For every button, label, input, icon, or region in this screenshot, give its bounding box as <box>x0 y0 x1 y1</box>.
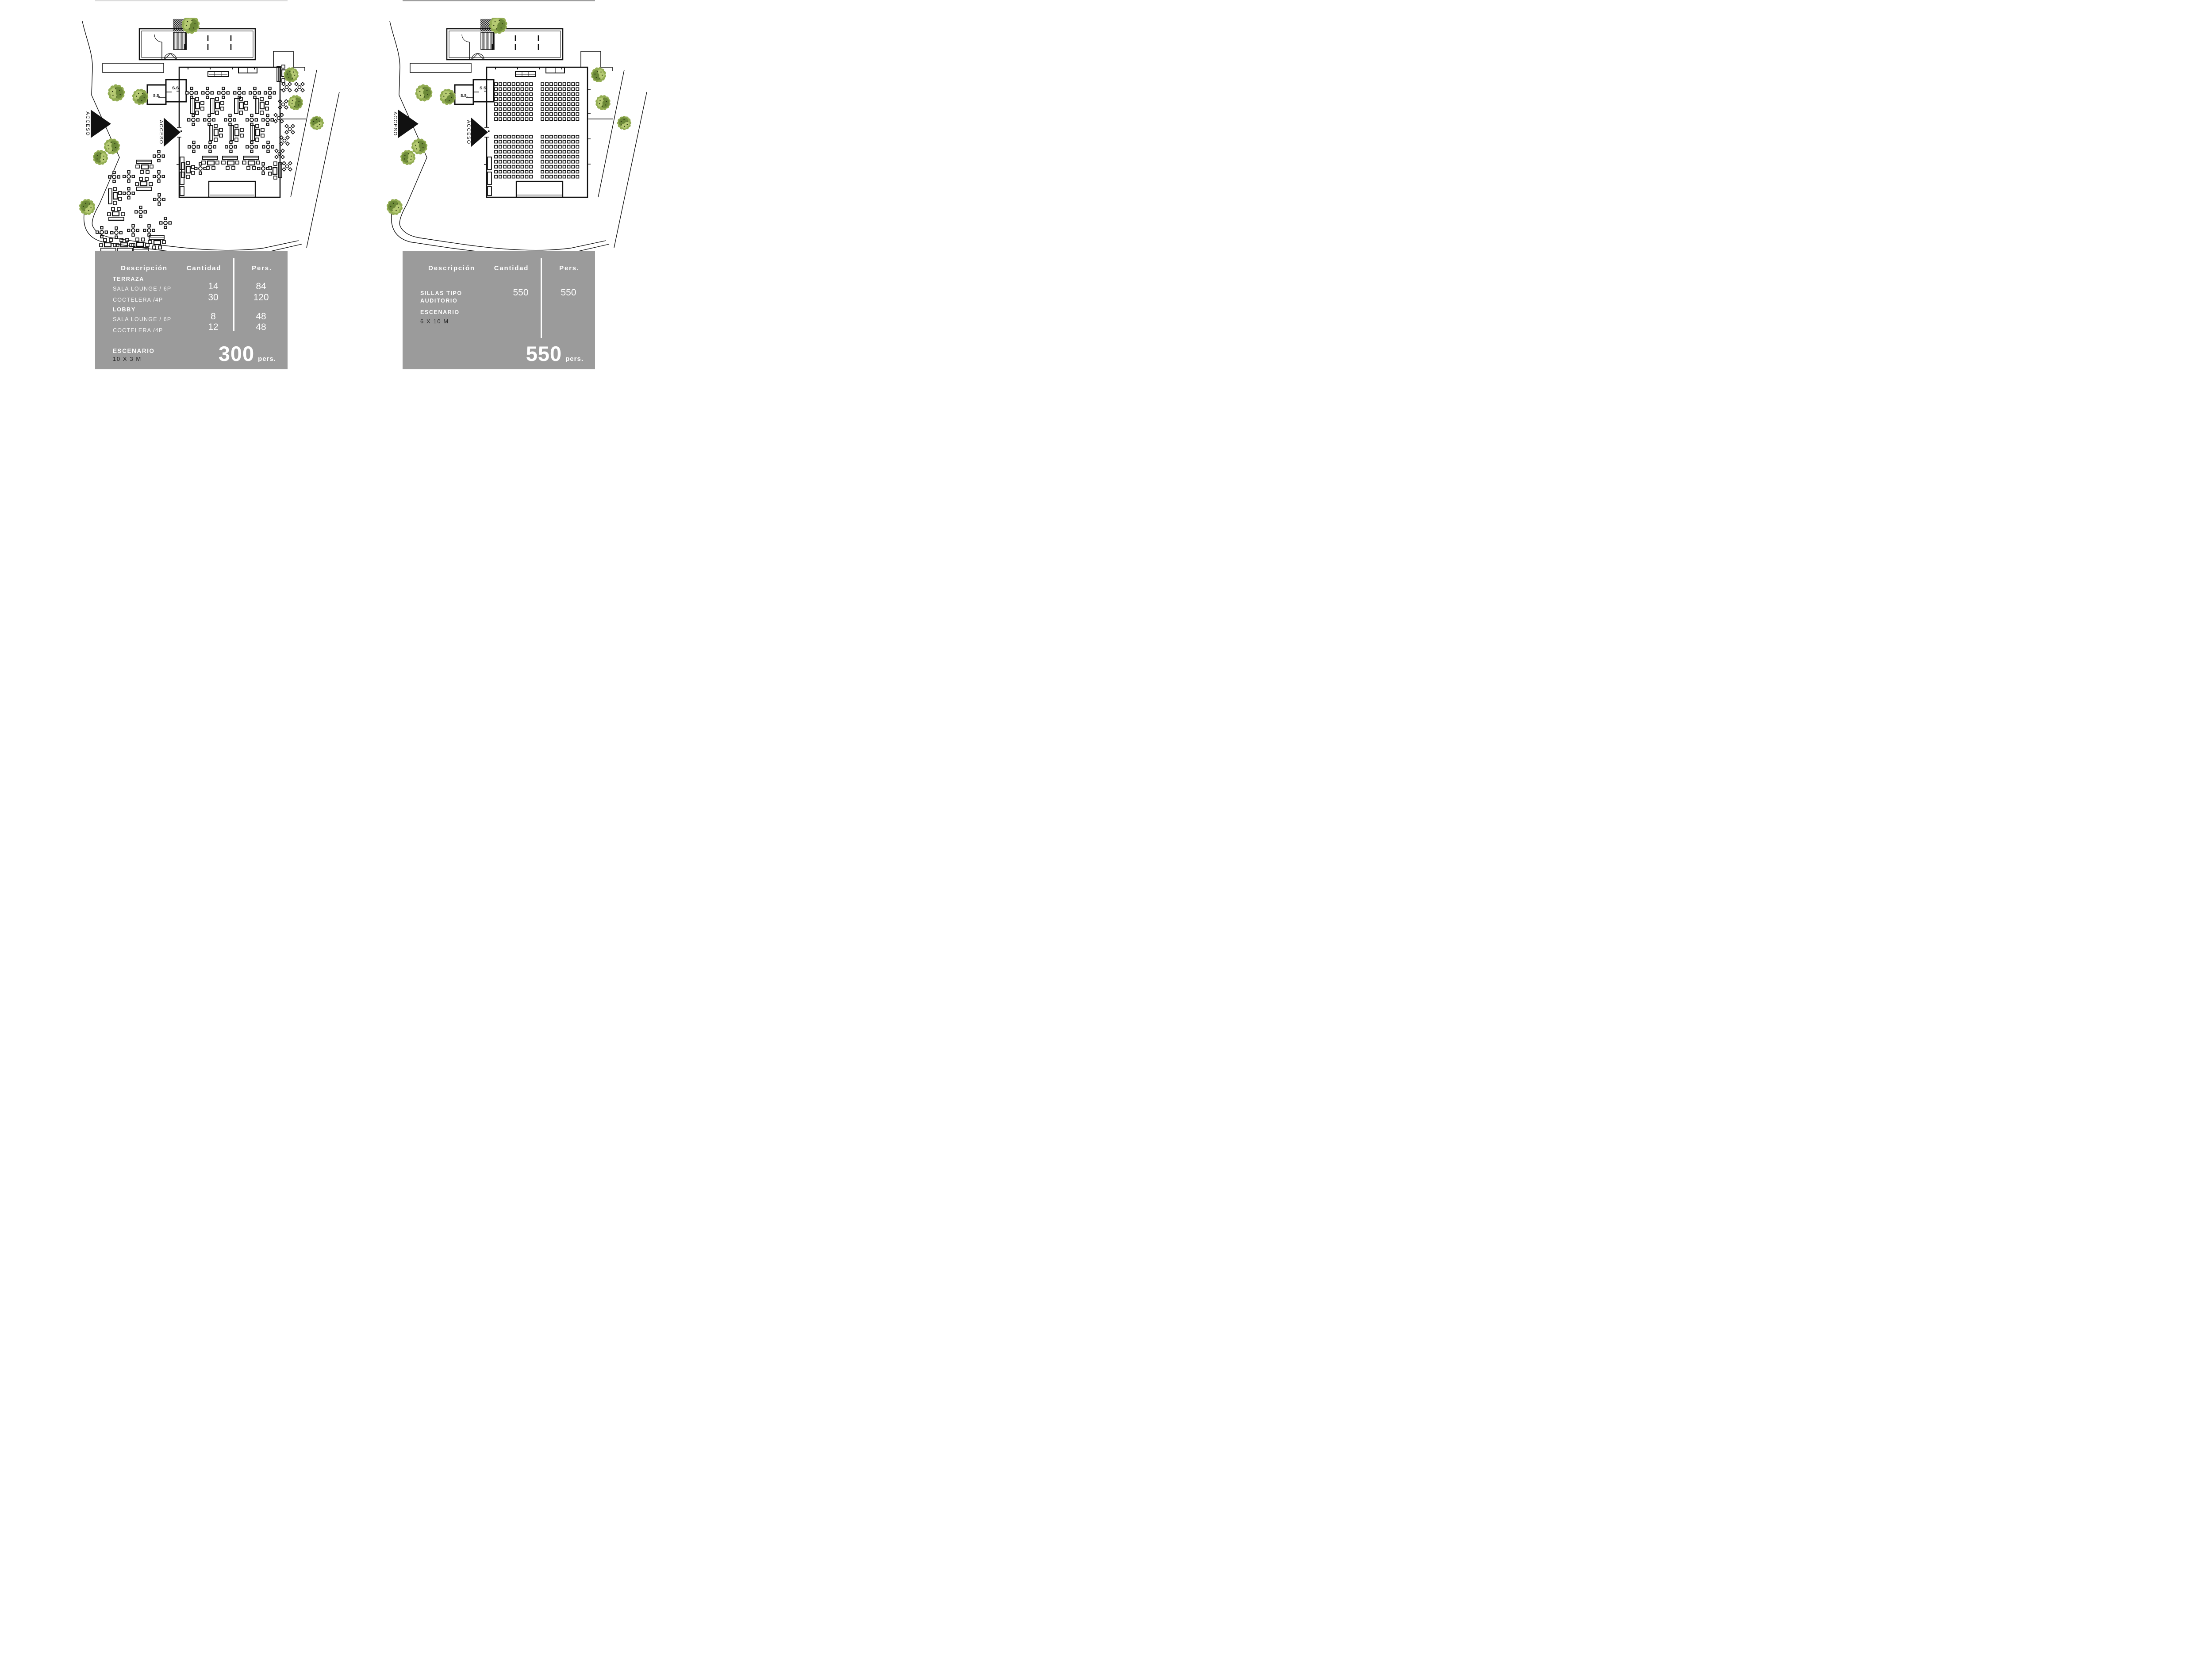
auditorium-seating-block <box>541 135 579 178</box>
cocktail-cross-table <box>154 194 165 205</box>
lounge-set <box>132 238 149 251</box>
ss-label: S.S. <box>153 93 160 98</box>
qty-value: 8 <box>193 311 233 322</box>
tree-icon <box>415 84 433 102</box>
cocktail-cross-table <box>188 114 199 126</box>
tree-icon <box>617 116 631 130</box>
cocktail-cross-table <box>188 141 200 153</box>
cocktail-cross-table <box>204 114 215 126</box>
serving-table <box>515 72 536 77</box>
table-divider <box>541 258 542 338</box>
cocktail-cross-table <box>123 171 134 182</box>
capacity-table-banquet: Descripción Cantidad Pers. TERRAZA SALA … <box>95 251 288 369</box>
total-value: 300 <box>219 343 254 364</box>
table-row-label: COCTELERA /4P <box>113 297 201 303</box>
cocktail-cross-table <box>204 141 216 153</box>
tree-icon <box>310 116 324 130</box>
total-unit: pers. <box>258 355 276 363</box>
cocktail-cross-table <box>246 141 257 153</box>
lounge-set <box>136 160 153 173</box>
high-cocktail-table <box>282 161 292 171</box>
cocktail-cross-table <box>224 114 236 126</box>
high-cocktail-table <box>274 113 284 123</box>
lounge-set <box>108 207 125 221</box>
cocktail-cross-table <box>218 87 229 99</box>
auditorium-seating-block <box>495 83 532 120</box>
buffet-table <box>488 172 492 184</box>
stage-info: ESCENARIO 10 X 3 M <box>113 348 155 362</box>
tree-icon <box>400 150 415 165</box>
cocktail-cross-table <box>225 141 237 153</box>
pers-value: 48 <box>241 311 281 322</box>
column-header-quantity: Cantidad <box>489 264 534 272</box>
cocktail-cross-table <box>262 114 273 126</box>
right-top-bar <box>403 0 595 1</box>
banquet-furniture <box>181 87 282 179</box>
buffet-table <box>180 172 184 184</box>
acceso-arrow-icon <box>91 110 111 138</box>
lounge-set <box>211 97 224 115</box>
column-header-description: Descripción <box>111 264 177 272</box>
restrooms: S.S.S.S. <box>455 80 494 104</box>
stage-title: ESCENARIO <box>420 309 509 315</box>
floor-plan-banquet: S.S.S.S.ACCESOACCESO <box>77 18 369 254</box>
floor-plan-auditorium: S.S.S.S.ACCESOACCESO <box>385 18 677 254</box>
high-cocktail-table <box>295 82 304 92</box>
total-value: 550 <box>526 343 562 364</box>
auditorium-seating-block <box>541 83 579 120</box>
table-row-label: AUDITORIO <box>420 298 509 304</box>
stage <box>516 181 563 197</box>
section-title: LOBBY <box>113 307 201 313</box>
high-cocktail-table <box>280 136 289 146</box>
lounge-set <box>251 124 264 142</box>
buffet-table <box>180 187 184 195</box>
lounge-set <box>209 124 223 142</box>
column-header-persons: Pers. <box>241 264 283 272</box>
tree-icon <box>284 67 299 82</box>
cocktail-cross-table <box>246 114 257 126</box>
page-root: S.S.S.S.ACCESOACCESO S.S.S.S.ACCESOACCES… <box>0 0 694 369</box>
table-row-label: SALA LOUNGE / 6P <box>113 316 201 322</box>
capacity-table-auditorium: Descripción Cantidad Pers. SILLAS TIPO A… <box>403 251 595 369</box>
tree-icon <box>595 95 611 110</box>
qty-value: 30 <box>193 292 233 303</box>
buffet-table <box>488 157 492 169</box>
buffet-table <box>180 157 184 169</box>
cocktail-cross-table <box>262 141 274 153</box>
cocktail-cross-table <box>202 87 213 99</box>
table-row-label: SILLAS TIPO <box>420 290 509 296</box>
acceso-label: ACCESO <box>158 120 164 144</box>
pers-value: 120 <box>241 292 281 303</box>
cocktail-cross-table <box>264 87 276 99</box>
tree-icon <box>411 138 427 154</box>
cocktail-cross-table <box>143 225 155 236</box>
column-header-persons: Pers. <box>549 264 590 272</box>
serving-table <box>208 72 228 77</box>
lounge-set <box>255 97 269 115</box>
tree-icon <box>93 150 108 165</box>
lounge-set <box>135 177 153 191</box>
acceso-label: ACCESO <box>466 120 471 144</box>
tree-icon <box>108 84 125 102</box>
cocktail-cross-table <box>195 163 206 174</box>
cocktail-cross-table <box>123 188 134 199</box>
table-row-label: COCTELERA /4P <box>113 327 201 333</box>
cocktail-cross-table <box>135 206 146 218</box>
tree-icon <box>489 18 507 34</box>
cocktail-cross-table <box>160 217 171 229</box>
left-top-bar <box>95 0 288 1</box>
cocktail-cross-table <box>111 227 122 238</box>
tree-icon <box>104 138 120 154</box>
pers-value: 48 <box>241 322 281 333</box>
cocktail-cross-table <box>257 163 269 174</box>
stage-size: 6 X 10 M <box>420 318 509 325</box>
trees <box>387 18 631 215</box>
lounge-set <box>148 236 165 249</box>
lounge-set <box>191 97 204 115</box>
lounge-set <box>222 156 239 169</box>
cocktail-cross-table <box>153 150 165 162</box>
table-divider <box>233 258 234 331</box>
acceso-entrance: ACCESO <box>158 118 180 147</box>
cocktail-cross-table <box>186 87 197 99</box>
total-capacity: 300 pers. <box>219 343 276 364</box>
column-header-description: Descripción <box>419 264 485 272</box>
acceso-entrance: ACCESO <box>85 110 111 138</box>
tree-icon <box>132 89 148 105</box>
auditorium-seating-block <box>495 135 532 178</box>
cocktail-cross-table <box>153 171 165 182</box>
auditorium-seating <box>495 83 579 178</box>
qty-value: 12 <box>193 322 233 333</box>
buffet-table <box>488 187 492 195</box>
lounge-set <box>181 161 195 179</box>
lounge-set <box>230 124 243 142</box>
high-cocktail-table <box>282 82 292 92</box>
acceso-arrow-icon <box>471 118 488 147</box>
acceso-label: ACCESO <box>85 111 90 136</box>
total-capacity: 550 pers. <box>526 343 584 364</box>
cocktail-cross-table <box>127 225 139 236</box>
trees <box>79 18 324 215</box>
section-title: TERRAZA <box>113 276 201 282</box>
tree-icon <box>288 95 303 110</box>
restrooms: S.S.S.S. <box>147 80 186 104</box>
acceso-entrance: ACCESO <box>466 118 488 147</box>
high-cocktail-table <box>285 124 295 134</box>
lounge-set <box>108 188 122 205</box>
acceso-entrance: ACCESO <box>392 110 419 138</box>
cocktail-cross-table <box>108 171 120 183</box>
acceso-arrow-icon <box>164 118 180 147</box>
cocktail-cross-table <box>234 87 245 99</box>
tree-icon <box>440 89 456 105</box>
stage-title: ESCENARIO <box>113 348 155 354</box>
pers-value: 84 <box>241 281 281 292</box>
stage-size: 10 X 3 M <box>113 356 155 362</box>
column-header-quantity: Cantidad <box>182 264 226 272</box>
acceso-arrow-icon <box>398 110 419 138</box>
lounge-set <box>234 97 248 115</box>
tree-icon <box>387 199 403 215</box>
acceso-label: ACCESO <box>392 111 398 136</box>
tree-icon <box>182 18 200 34</box>
table-row-label: SALA LOUNGE / 6P <box>113 286 201 292</box>
stage <box>209 181 255 197</box>
qty-value: 14 <box>193 281 233 292</box>
tree-icon <box>591 67 606 82</box>
total-unit: pers. <box>565 355 584 363</box>
tree-icon <box>79 199 95 215</box>
lounge-set <box>100 238 117 252</box>
cocktail-cross-table <box>249 87 261 99</box>
pers-value: 550 <box>549 287 588 298</box>
ss-label: S.S. <box>461 93 468 98</box>
qty-value: 550 <box>501 287 541 298</box>
